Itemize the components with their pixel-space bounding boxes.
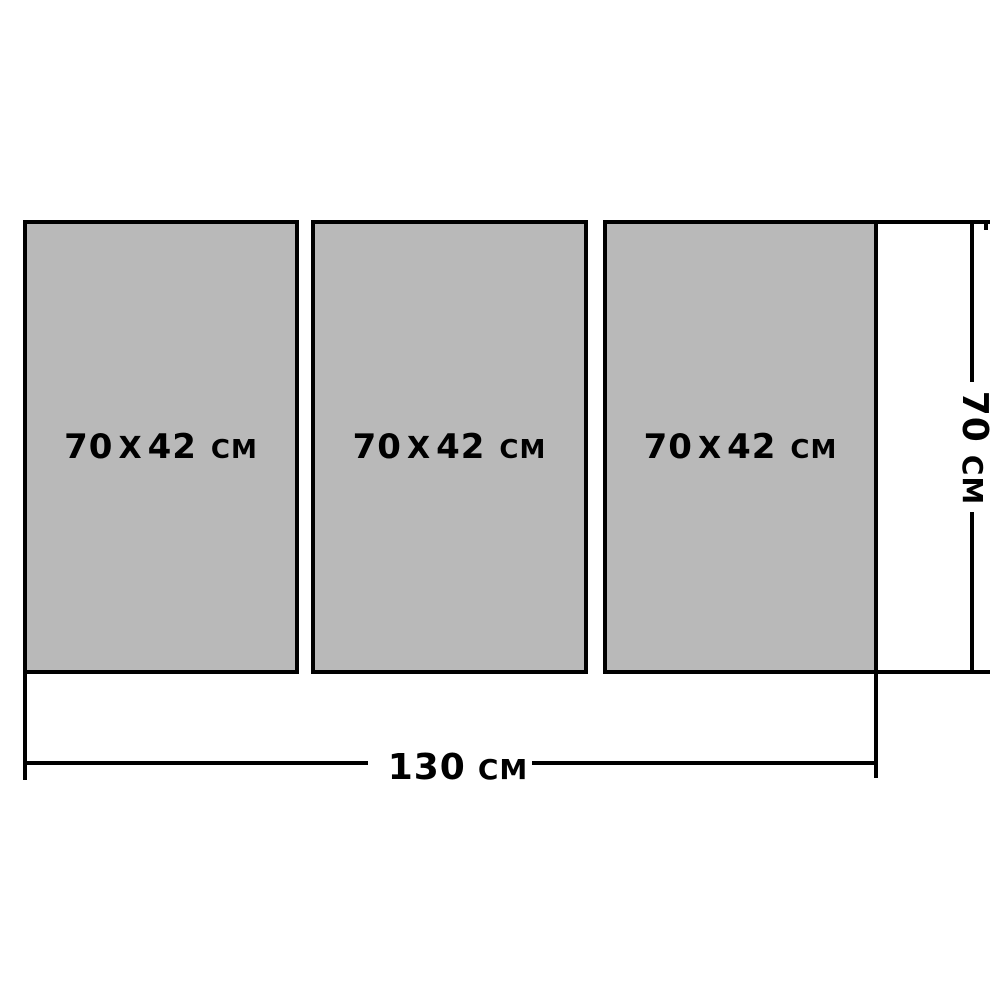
panel-size-unit: СМ [211, 435, 258, 465]
panel-center-size-label: 70Х42СМ [353, 430, 547, 464]
total-width-value: 130 [388, 747, 466, 788]
dimension-diagram: 70Х42СМ 70Х42СМ 70Х42СМ 130СМ 70СМ [0, 0, 1000, 1000]
total-height-label: 70СМ [956, 391, 992, 506]
panel-height-value: 42 [727, 427, 776, 467]
panel-size-unit: СМ [499, 435, 546, 465]
panel-left: 70Х42СМ [23, 220, 299, 674]
panel-size-unit: СМ [790, 435, 837, 465]
total-width-unit: СМ [478, 753, 528, 786]
total-height-unit: СМ [956, 455, 989, 505]
panel-right-size-label: 70Х42СМ [644, 430, 838, 464]
panel-left-size-label: 70Х42СМ [64, 430, 258, 464]
height-dimension-line-lower [970, 512, 974, 674]
total-height-value: 70 [954, 391, 995, 443]
total-width-label: 130СМ [388, 750, 529, 786]
width-dimension-line-left [25, 761, 368, 765]
panel-size-separator: Х [698, 431, 722, 466]
panel-width-value: 70 [353, 427, 402, 467]
panel-size-separator: Х [118, 431, 142, 466]
panel-height-value: 42 [148, 427, 197, 467]
panel-width-value: 70 [64, 427, 113, 467]
panel-width-value: 70 [644, 427, 693, 467]
height-dimension-line-upper [970, 220, 974, 382]
panel-right: 70Х42СМ [603, 220, 878, 674]
panel-height-value: 42 [436, 427, 485, 467]
extension-line-top-tick [984, 220, 988, 230]
panel-size-separator: Х [407, 431, 431, 466]
width-dimension-line-right [532, 761, 876, 765]
panel-center: 70Х42СМ [311, 220, 588, 674]
